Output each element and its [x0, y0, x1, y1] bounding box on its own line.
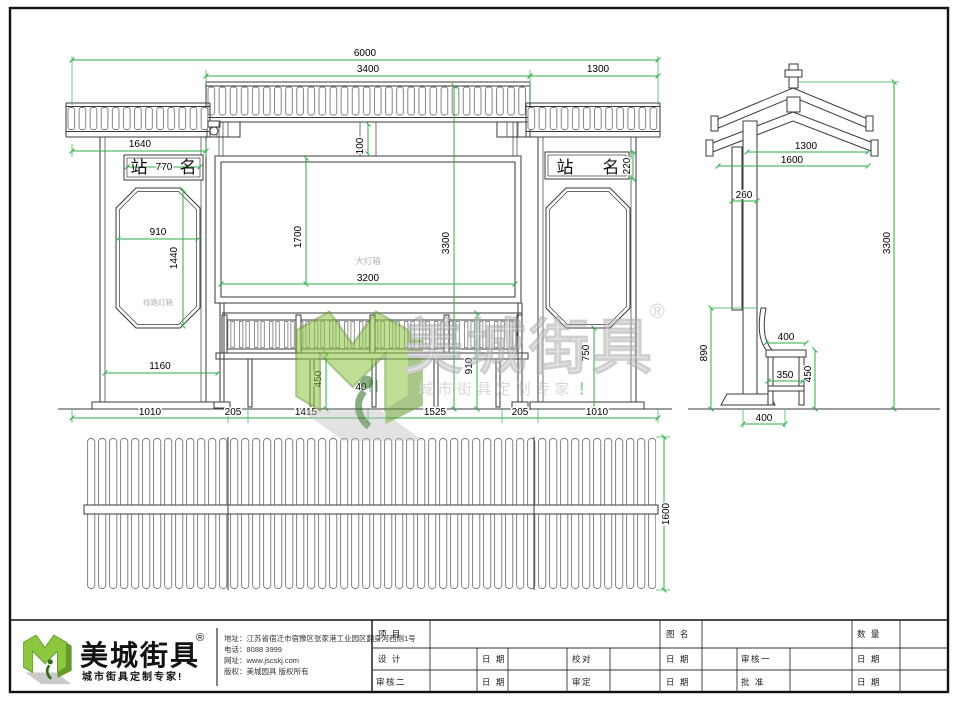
dim-base-5: 205 — [512, 407, 529, 418]
titleblock-project: 项 目 — [378, 629, 402, 639]
titleblock-approve: 批 准 — [741, 677, 765, 687]
titleblock-drawing-name: 图 名 — [666, 629, 690, 639]
dim-octagon-height: 1440 — [169, 246, 180, 269]
company-website: 网址：www.jscskj.com — [224, 655, 299, 665]
sign-char-zhan-2: 站 — [557, 158, 574, 177]
bench-side — [759, 308, 806, 405]
dim-side-seat-width: 350 — [777, 370, 794, 381]
titleblock-design: 设 计 — [378, 654, 402, 664]
dim-roof-gap: 100 — [355, 137, 366, 154]
dim-base-6: 1010 — [586, 407, 609, 418]
titleblock-date-6: 日 期 — [857, 677, 881, 687]
titleblock-date-5: 日 期 — [666, 677, 690, 687]
cad-drawing: 大灯箱 站 名 770 站 名 220 910 14 — [0, 0, 960, 704]
sign-char-ming-2: 名 — [603, 158, 620, 177]
footer-logo-block: 美城街具 ® 城市街具定制专家! 地址：江苏省宿迁市宿豫区张家港工业园区翻身河西… — [24, 628, 416, 686]
right-station-sign: 站 名 220 — [545, 152, 637, 179]
dim-side-seat-depth: 400 — [778, 332, 795, 343]
dim-side-pole-width: 260 — [736, 190, 753, 201]
titleblock-proofread: 校对 — [572, 654, 592, 664]
registered-icon: ® — [650, 301, 665, 323]
dim-plan-depth: 1600 — [661, 502, 672, 525]
company-phone: 电话：8088 3999 — [224, 644, 282, 654]
main-lightbox-label: 大灯箱 — [355, 256, 381, 266]
titleblock-date-3: 日 期 — [857, 654, 881, 664]
titleblock-quantity: 数 量 — [857, 629, 881, 639]
dim-sign-width: 770 — [156, 162, 173, 173]
dim-left-bottom-width: 1160 — [149, 361, 171, 372]
dim-lightbox-width: 3200 — [357, 273, 380, 284]
roof-clamp — [208, 121, 220, 127]
titleblock-review-2: 审核二 — [376, 677, 406, 687]
dim-side-roof-outer: 1600 — [781, 155, 804, 166]
titleblock-date-4: 日 期 — [482, 677, 506, 687]
sign-char-ming: 名 — [180, 158, 197, 177]
roof-left — [66, 103, 210, 137]
company-logo — [24, 635, 72, 684]
side-elevation: 1300 1600 260 890 400 450 350 400 3300 — [688, 64, 940, 428]
registered-icon-footer: ® — [196, 632, 204, 644]
titleblock-date-1: 日 期 — [482, 654, 506, 664]
roof-right — [526, 103, 660, 137]
dim-left-section-width: 1640 — [129, 139, 152, 150]
dim-side-seat-height: 450 — [803, 365, 814, 382]
watermark-brand: 美城街具 — [403, 314, 655, 381]
watermark-slogan-mark: ！ — [578, 381, 593, 398]
roof-plan: 1600 — [84, 437, 672, 590]
dim-base-1: 1010 — [139, 407, 162, 418]
title-block: 项 目 图 名 数 量 设 计 日 期 校对 日 期 审核一 日 期 审核二 日… — [372, 620, 948, 692]
dim-total-width: 6000 — [354, 48, 377, 59]
dim-sign-height: 220 — [622, 157, 633, 174]
side-panel — [732, 147, 742, 310]
titleblock-review-1: 审核一 — [741, 654, 771, 664]
dim-lightbox-height: 1700 — [293, 225, 304, 248]
company-copyright: 版权：美城园具 版权所有 — [224, 666, 309, 676]
sign-char-zhan: 站 — [131, 158, 148, 177]
company-name: 美城街具 — [80, 639, 200, 671]
dim-roof-side-width: 1300 — [587, 64, 610, 75]
dim-roof-center-width: 3400 — [357, 64, 380, 75]
route-lightbox-label: 线路灯箱 — [143, 297, 173, 307]
right-octagon-panel — [546, 188, 630, 328]
titleblock-approve-check: 审定 — [572, 677, 592, 687]
left-octagon-panel: 910 1440 线路灯箱 — [116, 188, 200, 328]
watermark-slogan: 城市街具定制专家 — [418, 381, 574, 398]
left-station-sign: 站 名 770 — [124, 155, 203, 180]
dim-side-total-height: 3300 — [882, 231, 893, 254]
company-slogan: 城市街具定制专家! — [82, 670, 183, 683]
plan-center-rail — [84, 505, 658, 514]
drawing-sheet: 大灯箱 站 名 770 站 名 220 910 14 — [0, 0, 960, 704]
dim-side-base-width: 400 — [756, 413, 773, 424]
dim-octagon-width: 910 — [150, 227, 167, 238]
dim-total-height: 3300 — [441, 231, 452, 254]
side-roof — [706, 64, 878, 156]
dim-base-2: 205 — [225, 407, 242, 418]
dim-base-4: 1525 — [424, 407, 447, 418]
dim-side-backrest-height: 890 — [699, 344, 710, 361]
pole-base — [721, 394, 775, 405]
side-pole — [743, 121, 757, 402]
dim-side-roof-inner: 1300 — [795, 141, 818, 152]
titleblock-date-2: 日 期 — [666, 654, 690, 664]
